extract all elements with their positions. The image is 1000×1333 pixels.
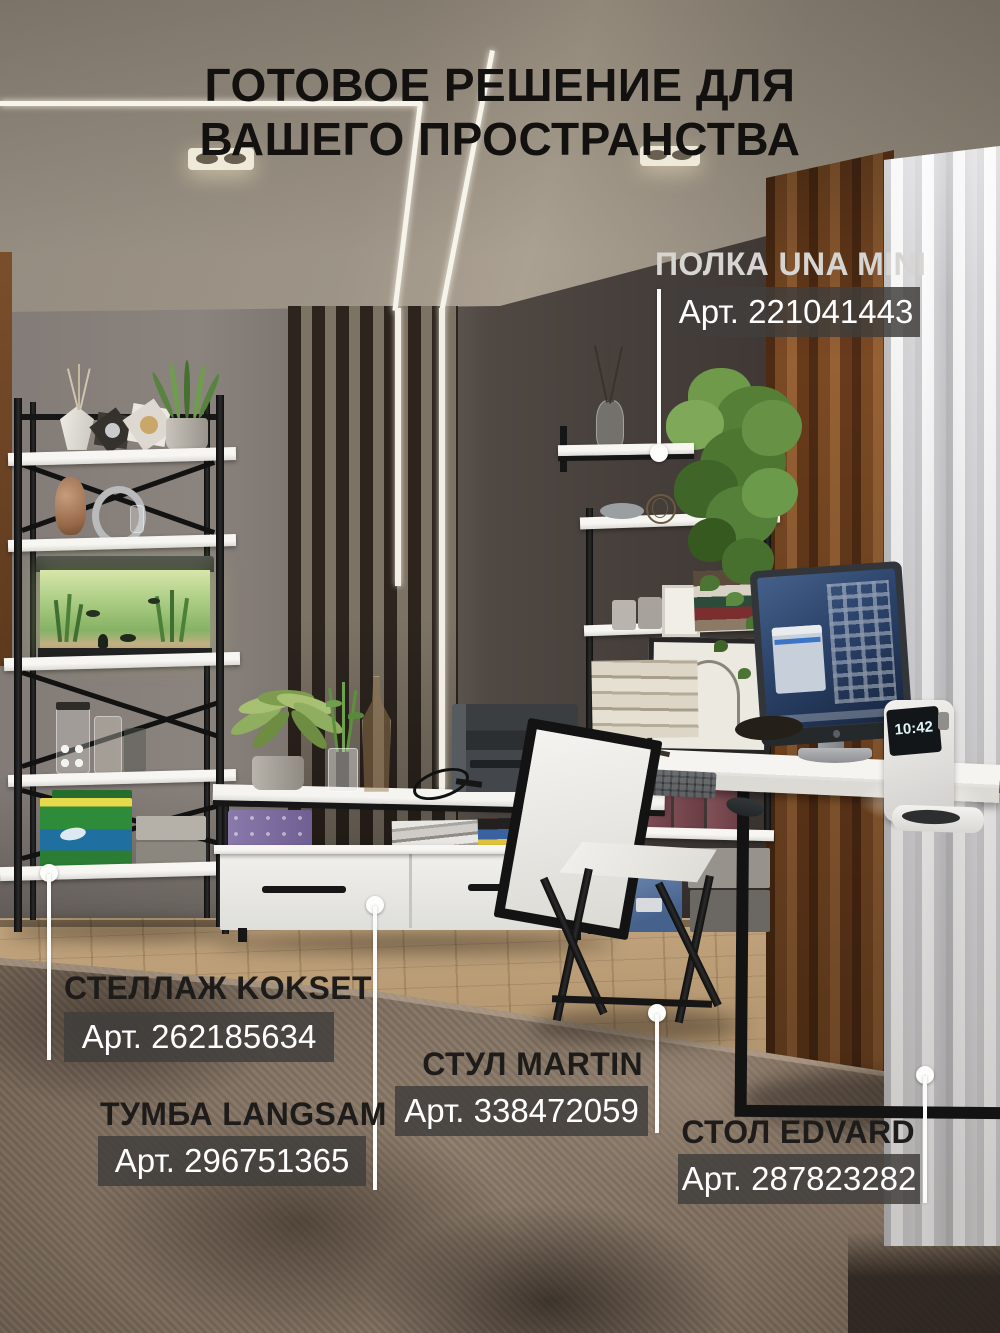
label-langsam-article: Арт. 296751365 xyxy=(98,1136,366,1186)
storage-box-blue-label xyxy=(636,898,662,912)
shelving-floor-shadow xyxy=(6,922,246,940)
decor-bowl xyxy=(600,503,644,519)
page-title: ГОТОВОЕ РЕШЕНИЕ ДЛЯ ВАШЕГО ПРОСТРАНСТВА xyxy=(0,58,1000,167)
decor-jar-large-contents xyxy=(58,742,86,770)
decor-jar-large-lid xyxy=(56,702,90,710)
label-kokset-article: Арт. 262185634 xyxy=(64,1012,334,1062)
product-showcase-image: 10:42 ГОТОВОЕ РЕШЕНИЕ ДЛЯ ВАШЕГО ПРОСТРА… xyxy=(0,0,1000,1333)
imac-desktop-icons xyxy=(827,580,897,704)
leader-dot-una-mini xyxy=(650,444,668,462)
leader-line-martin xyxy=(655,1014,659,1133)
striped-plant-pot xyxy=(252,756,304,790)
aquarium-fish xyxy=(148,598,160,604)
unamini-twig xyxy=(608,338,610,402)
leader-line-edvard xyxy=(923,1076,927,1203)
decor-plant-pot xyxy=(166,418,208,450)
chair-floor-shadow xyxy=(532,1008,742,1044)
label-una-mini-article: Арт. 221041443 xyxy=(672,287,920,337)
aquarium-plant xyxy=(170,590,174,642)
decor-plant-leaf xyxy=(184,360,190,420)
unamini-vase xyxy=(596,400,624,450)
page-title-line1: ГОТОВОЕ РЕШЕНИЕ ДЛЯ xyxy=(0,58,1000,112)
hanging-plant-vine-leaf xyxy=(738,668,751,679)
decor-beige-books xyxy=(591,659,698,739)
clock-dock-slot xyxy=(938,712,949,730)
decor-jar-dark xyxy=(124,728,146,772)
hanging-plant-vine-leaf xyxy=(726,592,744,606)
bamboo-leaf xyxy=(326,700,342,707)
label-edvard-name: СТОЛ EDVARD xyxy=(660,1114,915,1151)
decor-glass-pendant xyxy=(130,505,144,533)
langsam-drawer-divider xyxy=(409,854,412,928)
decor-jar-small xyxy=(94,716,122,774)
bamboo-sprig xyxy=(342,682,345,752)
label-langsam-name: ТУМБА LANGSAM xyxy=(100,1096,366,1133)
aquarium-fish xyxy=(86,610,100,617)
decor-star-white-center xyxy=(140,416,158,434)
clock-time: 10:42 xyxy=(894,718,934,738)
label-edvard-article: Арт. 287823282 xyxy=(678,1154,920,1204)
label-martin-article: Арт. 338472059 xyxy=(395,1086,648,1136)
langsam-foot-left xyxy=(238,928,247,942)
led-strip-wall-a xyxy=(395,308,401,586)
leader-line-kokset xyxy=(47,874,51,1060)
leader-line-langsam xyxy=(373,906,377,1190)
kokset-post-front-left xyxy=(14,398,22,932)
bamboo-leaf xyxy=(348,712,364,719)
decor-star-dark-center xyxy=(105,423,120,438)
page-title-line2: ВАШЕГО ПРОСТРАНСТВА xyxy=(0,112,1000,166)
decor-gray-box-top xyxy=(136,816,206,840)
leader-line-una-mini xyxy=(657,289,661,452)
decor-brown-vase xyxy=(55,477,86,535)
hanging-plant-vine-leaf xyxy=(714,640,728,652)
led-strip-wall-b xyxy=(439,308,445,790)
label-kokset-name: СТЕЛЛАЖ KOKSET xyxy=(64,970,372,1007)
bamboo-glass xyxy=(328,748,358,792)
corner-rug-shadow xyxy=(848,1232,1000,1333)
tvstand-floor-shadow xyxy=(215,934,615,952)
clock-screen: 10:42 xyxy=(886,706,942,756)
hanging-plant-vine-leaf xyxy=(700,575,720,591)
label-una-mini-name: ПОЛКА UNA MINI xyxy=(655,246,917,283)
decor-wire-ball-inner xyxy=(652,498,668,518)
decor-mug-2 xyxy=(638,597,662,629)
aquarium-fish-angel xyxy=(98,634,108,648)
label-martin-name: СТУЛ MARTIN xyxy=(400,1046,643,1083)
decor-green-box xyxy=(40,798,132,868)
decor-mug-1 xyxy=(612,600,636,630)
langsam-drawer-handle-left xyxy=(262,886,346,893)
imac-stand-base xyxy=(798,748,872,763)
aquarium-fish xyxy=(120,634,136,642)
